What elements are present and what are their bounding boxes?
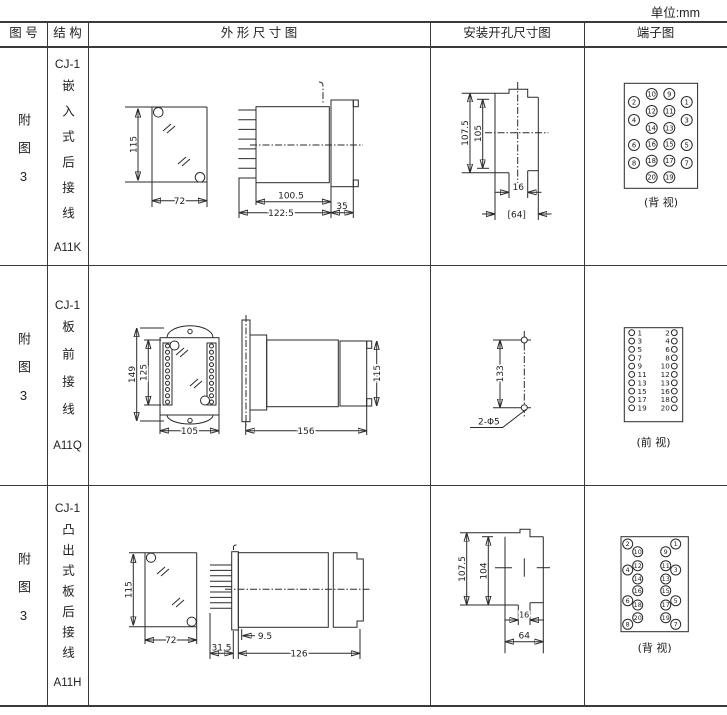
- dim-label: 35: [336, 202, 347, 212]
- header-terminal: 端子图: [584, 21, 727, 46]
- svg-text:14: 14: [647, 124, 656, 132]
- row1-terminal-diagram: 2468101214161820911131517191357 (背 视): [615, 75, 715, 215]
- row2-fig-cell: 附图3: [0, 265, 47, 485]
- row2-structure-text: 板前接线: [58, 320, 77, 430]
- svg-text:5: 5: [685, 141, 689, 149]
- row3-side-view-drawing: 9.5 31.5 126: [205, 543, 375, 668]
- svg-text:10: 10: [634, 548, 642, 556]
- svg-text:20: 20: [634, 614, 642, 622]
- row-divider-1: [0, 265, 727, 266]
- svg-text:3: 3: [685, 116, 689, 124]
- dim-label: 125: [140, 364, 150, 381]
- dim-label: 126: [290, 650, 307, 660]
- svg-text:13: 13: [665, 124, 674, 132]
- svg-text:8: 8: [626, 621, 630, 629]
- svg-text:17: 17: [662, 601, 670, 609]
- row1-code: A11K: [54, 242, 81, 254]
- row1-structure-cell: CJ-1 嵌入式后接线 A11K: [47, 46, 88, 265]
- svg-text:10: 10: [647, 90, 656, 98]
- dim-label: 16: [519, 610, 529, 619]
- svg-text:5: 5: [674, 597, 678, 605]
- svg-text:7: 7: [685, 159, 689, 167]
- svg-text:15: 15: [662, 587, 670, 595]
- svg-text:17: 17: [665, 157, 674, 165]
- svg-text:18: 18: [634, 601, 642, 609]
- col-divider-4: [584, 21, 585, 706]
- svg-text:8: 8: [632, 159, 636, 167]
- terminal-circles: 2468101214161820911131517191357: [623, 539, 681, 629]
- row3-fig-label: 附图3: [14, 552, 33, 638]
- unit-label: 单位:mm: [651, 2, 700, 21]
- dim-label: 72: [174, 197, 185, 207]
- svg-text:9: 9: [667, 90, 671, 98]
- row1-fig-label: 附图3: [14, 113, 33, 199]
- svg-text:3: 3: [674, 566, 678, 574]
- row-divider-2: [0, 485, 727, 486]
- dim-label: 115: [129, 136, 139, 153]
- table-border-bottom: [0, 705, 727, 707]
- row2-model: CJ-1: [55, 298, 80, 312]
- svg-text:15: 15: [665, 141, 674, 149]
- dim-label: 100.5: [278, 192, 304, 202]
- svg-text:11: 11: [662, 562, 670, 570]
- dim-label: 107.5: [461, 120, 471, 146]
- dim-label: 16: [513, 183, 525, 193]
- dim-label: 107.5: [458, 556, 468, 582]
- svg-text:13: 13: [662, 575, 670, 583]
- row3-structure-cell: CJ-1 凸出式板后接线 A11H: [47, 485, 88, 705]
- svg-text:4: 4: [626, 566, 630, 574]
- svg-text:12: 12: [647, 107, 656, 115]
- svg-text:12: 12: [634, 562, 642, 570]
- col-divider-2: [88, 21, 89, 706]
- svg-text:2: 2: [632, 98, 636, 106]
- terminal-circles: 1234567891011121313151617181920: [629, 328, 677, 412]
- dim-label: 122.5: [268, 209, 294, 219]
- svg-text:16: 16: [647, 141, 656, 149]
- row1-side-view-drawing: 100.5 122.5 35: [235, 78, 365, 220]
- row3-structure-text: 凸出式板后接线: [58, 523, 77, 667]
- dim-label: 31.5: [211, 643, 231, 653]
- dim-label: 115: [373, 365, 383, 382]
- dim-label: 149: [128, 366, 138, 383]
- header-fig-no: 图 号: [0, 21, 47, 46]
- svg-text:20: 20: [661, 403, 671, 412]
- col-divider-3: [430, 21, 431, 706]
- svg-text:2: 2: [626, 540, 630, 548]
- row2-install-drawing: 133 2-Φ5: [468, 323, 558, 443]
- row3-front-view-drawing: 115 72: [123, 543, 208, 655]
- header-structure: 结 构: [47, 21, 88, 46]
- svg-text:6: 6: [632, 141, 636, 149]
- row3-terminal-diagram: 2468101214161820911131517191357 (背 视): [613, 530, 713, 662]
- dim-label: [64]: [507, 210, 525, 220]
- dim-label: 9.5: [258, 632, 272, 642]
- dim-label: 115: [125, 581, 135, 598]
- dim-label: 64: [518, 632, 530, 642]
- svg-text:19: 19: [662, 614, 670, 622]
- view-label: (前 视): [636, 435, 670, 449]
- terminal-circles: 2468101214161820911131517191357: [629, 89, 693, 183]
- header-divider: [0, 46, 727, 48]
- svg-text:6: 6: [626, 597, 630, 605]
- row2-fig-label: 附图3: [14, 332, 33, 418]
- row2-code: A11Q: [53, 440, 82, 452]
- row3-model: CJ-1: [55, 501, 80, 515]
- hole-spec-label: 2-Φ5: [478, 418, 500, 428]
- svg-text:19: 19: [665, 174, 674, 182]
- svg-text:14: 14: [634, 575, 642, 583]
- dim-label: 105: [474, 125, 484, 142]
- row2-front-view-drawing: 149 125 105: [128, 318, 228, 440]
- row2-terminal-diagram: 1234567891011121313151617181920 (前 视): [615, 320, 715, 455]
- svg-text:1: 1: [674, 540, 678, 548]
- svg-text:7: 7: [674, 621, 678, 629]
- svg-text:20: 20: [647, 174, 656, 182]
- svg-text:9: 9: [664, 548, 668, 556]
- row3-code: A11H: [54, 677, 82, 689]
- row2-side-view-drawing: 115 156: [238, 315, 383, 440]
- header-outline: 外 形 尺 寸 图: [88, 21, 430, 46]
- dim-label: 72: [165, 636, 176, 646]
- row1-install-drawing: 107.5 105 16 [64]: [455, 80, 555, 230]
- dim-label: 104: [480, 562, 490, 579]
- svg-text:16: 16: [634, 587, 642, 595]
- row1-model: CJ-1: [55, 57, 80, 71]
- dim-label: 105: [181, 427, 198, 437]
- row1-fig-cell: 附图3: [0, 46, 47, 265]
- header-install: 安装开孔尺寸图: [430, 21, 584, 46]
- dim-label: 133: [496, 365, 506, 382]
- row3-install-drawing: 107.5 104 16 64: [455, 525, 550, 663]
- view-label: (背 视): [638, 641, 672, 655]
- svg-text:18: 18: [647, 157, 656, 165]
- row3-fig-cell: 附图3: [0, 485, 47, 705]
- row1-structure-text: 嵌入式后接线: [58, 79, 77, 232]
- svg-text:11: 11: [665, 107, 674, 115]
- svg-text:19: 19: [638, 403, 648, 412]
- view-label: (背 视): [644, 195, 678, 209]
- row2-structure-cell: CJ-1 板前接线 A11Q: [47, 265, 88, 485]
- svg-text:1: 1: [685, 98, 689, 106]
- dim-label: 156: [297, 427, 314, 437]
- row1-front-view-drawing: 115 72: [120, 95, 215, 215]
- manual-page: 单位:mm 图 号 结 构 外 形 尺 寸 图 安装开孔尺寸图 端子图 附图3 …: [0, 0, 727, 715]
- svg-text:4: 4: [632, 116, 636, 124]
